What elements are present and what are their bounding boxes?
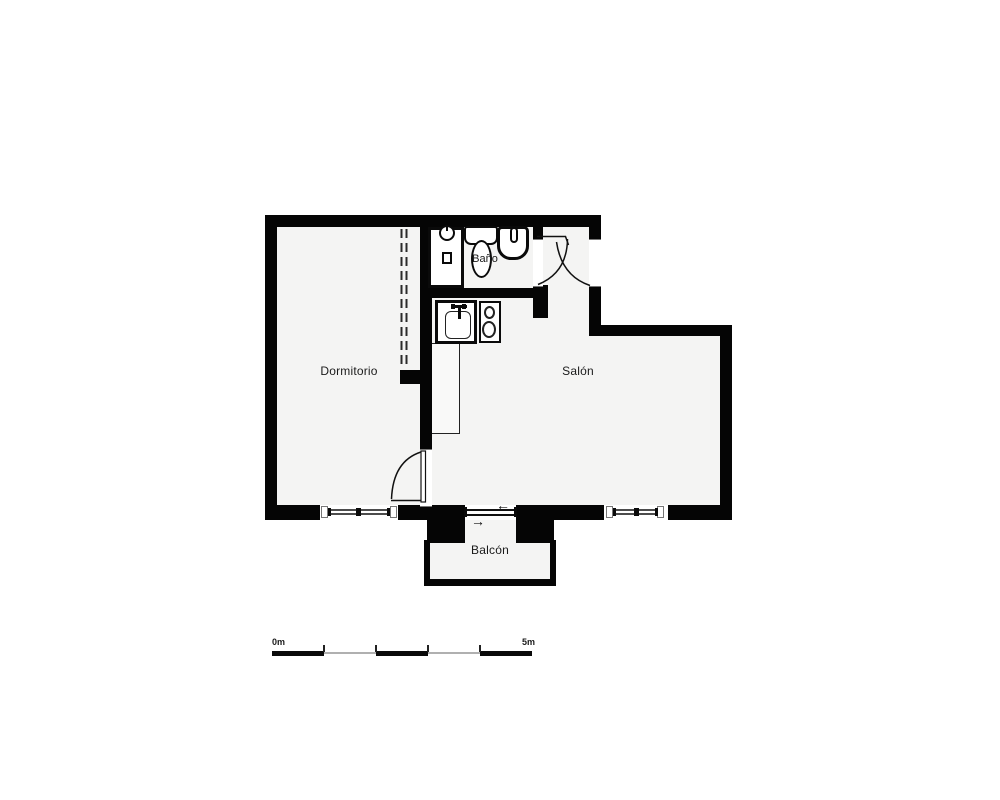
scale-segment — [428, 652, 480, 654]
bedroom-door-swing — [391, 451, 426, 502]
scale-tick — [323, 645, 325, 652]
scale-segment — [376, 651, 428, 656]
scale-end-label: 5m — [522, 637, 535, 647]
room-label-salon: Salón — [536, 364, 620, 378]
slide-left-arrow-icon: ← — [496, 498, 510, 512]
room-label-bano: Baño — [455, 253, 515, 265]
dormitorio-window-glazing — [330, 510, 388, 514]
room-label-balcon: Balcón — [450, 543, 530, 557]
wardrobe-dashed-partition — [402, 229, 407, 368]
scale-tick — [427, 645, 429, 652]
room-label-dormitorio: Dormitorio — [294, 364, 404, 378]
scale-segment — [272, 651, 324, 656]
scale-segment — [480, 651, 532, 656]
scale-tick — [479, 645, 481, 652]
slide-right-arrow-icon: → — [471, 514, 485, 528]
scale-segment — [324, 652, 376, 654]
salon-window-glazing — [615, 510, 655, 514]
entrance-door-swing — [537, 237, 590, 286]
linework-overlay — [0, 0, 1000, 800]
floorplan-canvas: ← → Dormitorio Salón Baño Balcón 0m 5m — [0, 0, 1000, 800]
scale-tick — [375, 645, 377, 652]
scale-start-label: 0m — [272, 637, 285, 647]
